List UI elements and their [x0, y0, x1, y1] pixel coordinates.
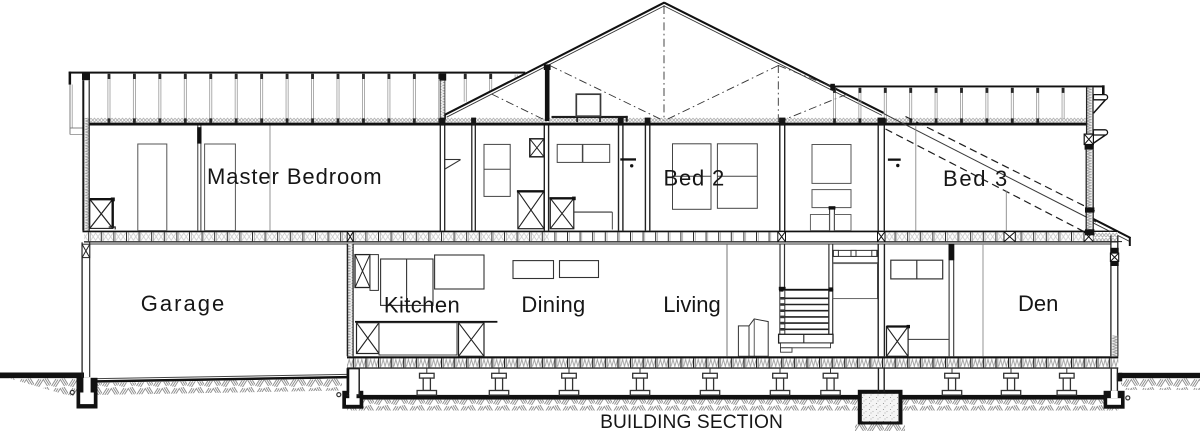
svg-text:BUILDING SECTION: BUILDING SECTION [600, 412, 783, 433]
svg-text:Bed 3: Bed 3 [943, 166, 1009, 191]
svg-text:Kitchen: Kitchen [384, 292, 460, 317]
svg-text:Dining: Dining [521, 292, 585, 317]
svg-text:Bed 2: Bed 2 [664, 166, 726, 191]
svg-text:Den: Den [1018, 291, 1058, 316]
svg-text:Living: Living [663, 292, 720, 317]
svg-text:Garage: Garage [141, 291, 226, 316]
svg-text:Master Bedroom: Master Bedroom [207, 164, 383, 189]
